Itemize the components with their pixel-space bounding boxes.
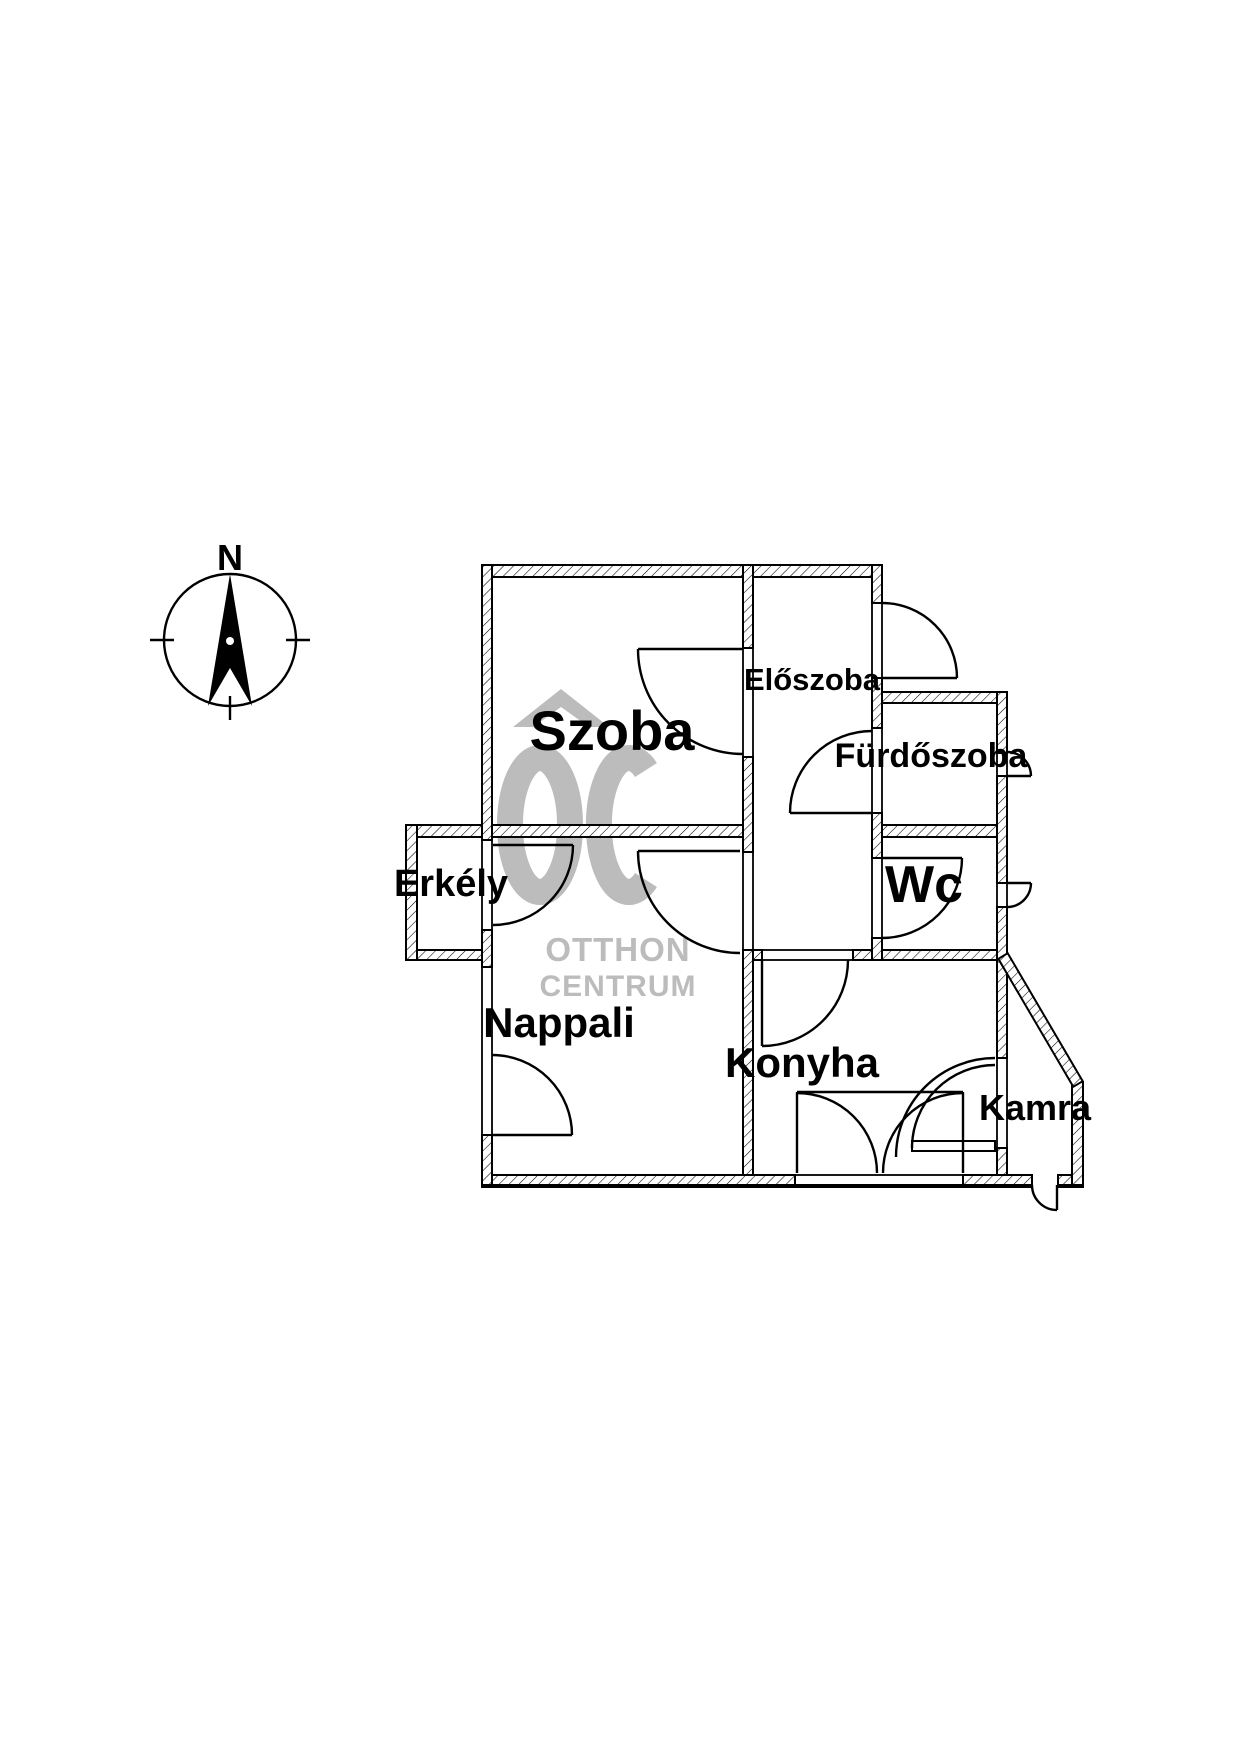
wall-left-upper <box>482 565 492 840</box>
konyha-window-arc-left <box>797 1093 877 1173</box>
compass-north-label: N <box>217 537 243 578</box>
compass-pivot-dot <box>226 637 234 645</box>
wall-szoba-bottom <box>406 825 753 837</box>
wall-left-lower <box>482 1135 492 1187</box>
nappali-window-arc <box>492 1055 572 1135</box>
watermark-line1: OTTHON <box>545 931 690 968</box>
room-label-furdoszoba: Fürdőszoba <box>835 737 1029 775</box>
wall-szoba-eloszoba <box>743 565 753 648</box>
wall-right-mid <box>997 907 1007 1058</box>
wc-window-arc <box>1007 883 1031 907</box>
entrance-door-arc <box>882 603 957 678</box>
exterior-door-arc <box>1032 1185 1057 1210</box>
wall-eloszoba-right-top <box>872 565 882 603</box>
floorplan-drawing: N OTTHON CENTRUM <box>0 0 1240 1754</box>
konyha-door-arc <box>762 960 848 1046</box>
compass-north-indicator: N <box>150 537 310 720</box>
room-label-kamra: Kamra <box>979 1087 1092 1128</box>
room-label-konyha: Konyha <box>725 1039 880 1086</box>
wall-erkely-bottom <box>406 950 492 960</box>
room-label-erkely: Erkély <box>394 863 508 905</box>
wall-top <box>482 565 882 577</box>
wall-kamra-diagonal <box>998 953 1082 1087</box>
konyha-window-arc-right <box>883 1093 963 1173</box>
room-label-wc: Wc <box>885 856 963 914</box>
wall-furdoszoba-top <box>882 692 1007 703</box>
room-label-eloszoba: Előszoba <box>744 662 881 697</box>
room-label-szoba: Szoba <box>530 699 696 762</box>
kamra-door-leaf <box>912 1141 995 1151</box>
floorplan-page: N OTTHON CENTRUM <box>0 0 1240 1754</box>
wall-furdoszoba-wc-divider <box>882 825 1007 837</box>
room-label-nappali: Nappali <box>483 999 635 1046</box>
